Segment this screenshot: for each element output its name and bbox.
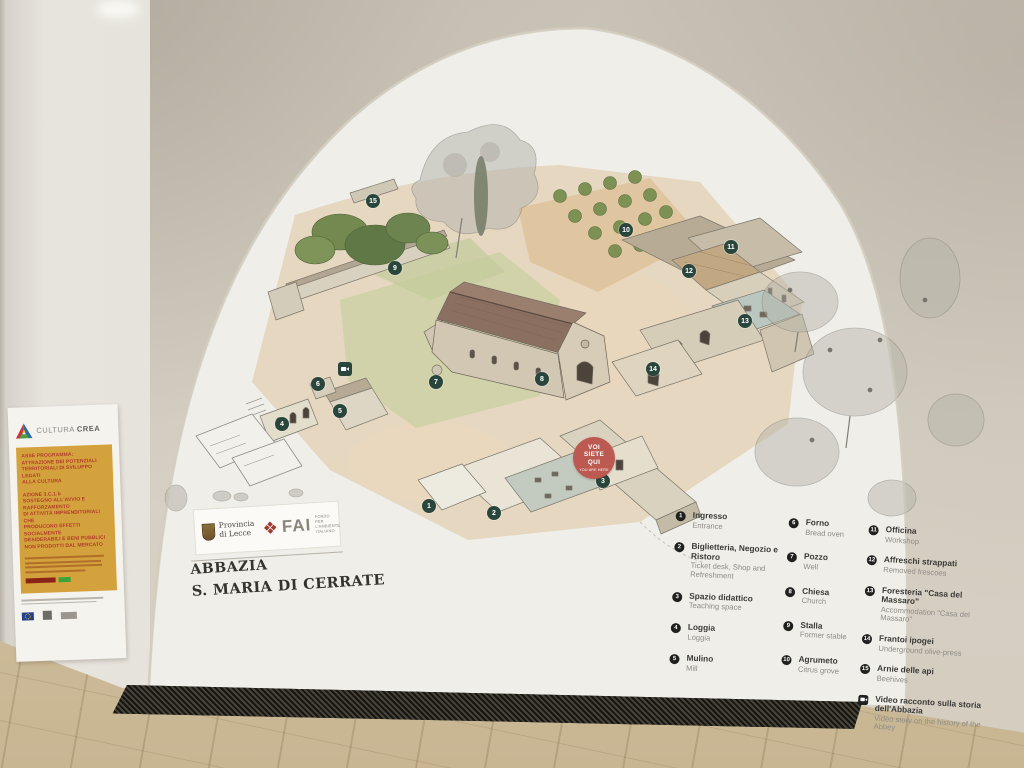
partner-logo-icon <box>43 611 52 620</box>
legend-number-badge: 2 <box>674 542 684 552</box>
legend-item: 15 Arnie delle api Beehives <box>859 663 990 690</box>
legend-number-badge: 4 <box>671 623 681 633</box>
legend-item: 4 Loggia Loggia <box>670 622 789 646</box>
map-marker: 1 <box>422 499 436 513</box>
fai-acronym: FAI <box>281 515 312 537</box>
legend-item: 13 Foresteria "Casa del Massaro" Accommo… <box>863 584 995 629</box>
map-marker: 7 <box>429 375 443 389</box>
yah-line2: SIETE <box>584 451 604 459</box>
legend-number-badge: 13 <box>865 585 876 596</box>
map-marker: 9 <box>388 261 402 275</box>
map-marker: 15 <box>366 194 380 208</box>
legend-item: 3 Spazio didattico Teaching space <box>672 591 791 615</box>
eu-flag-icon <box>22 612 34 620</box>
video-map-icon <box>338 362 352 376</box>
provincia-name-line2: di Lecce <box>219 529 255 540</box>
map-marker: 14 <box>646 362 660 376</box>
poster-small-print <box>25 554 111 572</box>
you-are-here-badge: VOI SIETE QUI YOU ARE HERE <box>573 437 615 479</box>
partner-logo2-icon <box>61 612 77 620</box>
map-marker: 4 <box>275 417 289 431</box>
poster-footnotes <box>21 596 118 620</box>
poster-green-chip <box>59 576 71 581</box>
yah-line3: QUI <box>588 459 600 467</box>
legend-number-badge: 7 <box>787 552 798 563</box>
legend-number-badge: 10 <box>781 655 792 666</box>
map-marker: 2 <box>487 506 501 520</box>
cultura-crea-brand: CULTURA CREA <box>15 420 111 438</box>
fai-mark-icon: ❖ <box>262 519 278 537</box>
fai-sub-line3: ITALIANO <box>316 528 341 534</box>
legend-column-1: 1 Ingresso Entrance 2 Biglietteria, Nego… <box>669 510 794 677</box>
legend-number-badge: 9 <box>783 621 794 632</box>
yah-line1: VOI <box>588 444 600 452</box>
legend-number-badge: 15 <box>860 664 871 675</box>
legend-number-badge: 14 <box>862 634 873 645</box>
legend-number-badge: 1 <box>676 511 686 521</box>
legend-item: 2 Biglietteria, Negozio e Ristoro Ticket… <box>673 541 793 584</box>
legend-column-3: 11 Officina Workshop 12 Affreschi strapp… <box>856 524 998 739</box>
brand-suffix: CREA <box>77 424 101 434</box>
legend-label-en: Ticket desk, Shop and Refreshment <box>690 562 792 584</box>
provincia-crest-icon <box>202 523 216 541</box>
cultura-crea-logo-icon <box>15 423 33 439</box>
map-marker: 12 <box>682 264 696 278</box>
map-marker: 10 <box>619 223 633 237</box>
legend-number-badge: 5 <box>669 654 679 664</box>
legend-number-badge: 6 <box>788 518 799 529</box>
map-marker: 6 <box>311 377 325 391</box>
legend-item: 1 Ingresso Entrance <box>675 510 794 534</box>
video-icon <box>858 694 869 705</box>
logos-card: Provincia di Lecce ❖ FAI FONDO PER L'AMB… <box>193 501 342 556</box>
poster-paragraph-2: AZIONE 3.C.1.b SOSTEGNO ALL'AVVIO E RAFF… <box>23 489 111 550</box>
room-photo: 1 2 3 4 5 6 7 8 9 10 11 12 13 14 15 <box>0 0 1024 768</box>
legend-item: 12 Affreschi strappati Removed frescoes <box>866 554 997 581</box>
legend-number-badge: 3 <box>672 592 682 602</box>
provincia-di-lecce-logo: Provincia di Lecce <box>202 520 256 540</box>
poster-gold-panel: ASSE PROGRAMMA: ATTRAZIONE DEI POTENZIAL… <box>16 444 117 593</box>
map-marker: 5 <box>333 404 347 418</box>
legend-number-badge: 11 <box>868 525 879 536</box>
fai-logo: ❖ FAI FONDO PER L'AMBIENTE ITALIANO <box>262 514 341 539</box>
legend-item: Video racconto sulla storia dell'Abbazia… <box>856 693 988 738</box>
brand-prefix: CULTURA <box>36 425 77 435</box>
legend-number-badge: 12 <box>866 555 877 566</box>
poster-highlight-chip <box>26 577 56 583</box>
legend-item: 14 Frantoi ipogei Underground olive-pres… <box>861 633 992 660</box>
legend-number-badge: 8 <box>785 586 796 597</box>
map-marker: 11 <box>724 240 738 254</box>
poster-paragraph-1: ASSE PROGRAMMA: ATTRAZIONE DEI POTENZIAL… <box>21 451 108 486</box>
yah-sub: YOU ARE HERE <box>579 468 608 472</box>
map-marker: 13 <box>738 314 752 328</box>
map-marker: 8 <box>535 372 549 386</box>
cultura-crea-poster: CULTURA CREA ASSE PROGRAMMA: ATTRAZIONE … <box>8 404 127 662</box>
